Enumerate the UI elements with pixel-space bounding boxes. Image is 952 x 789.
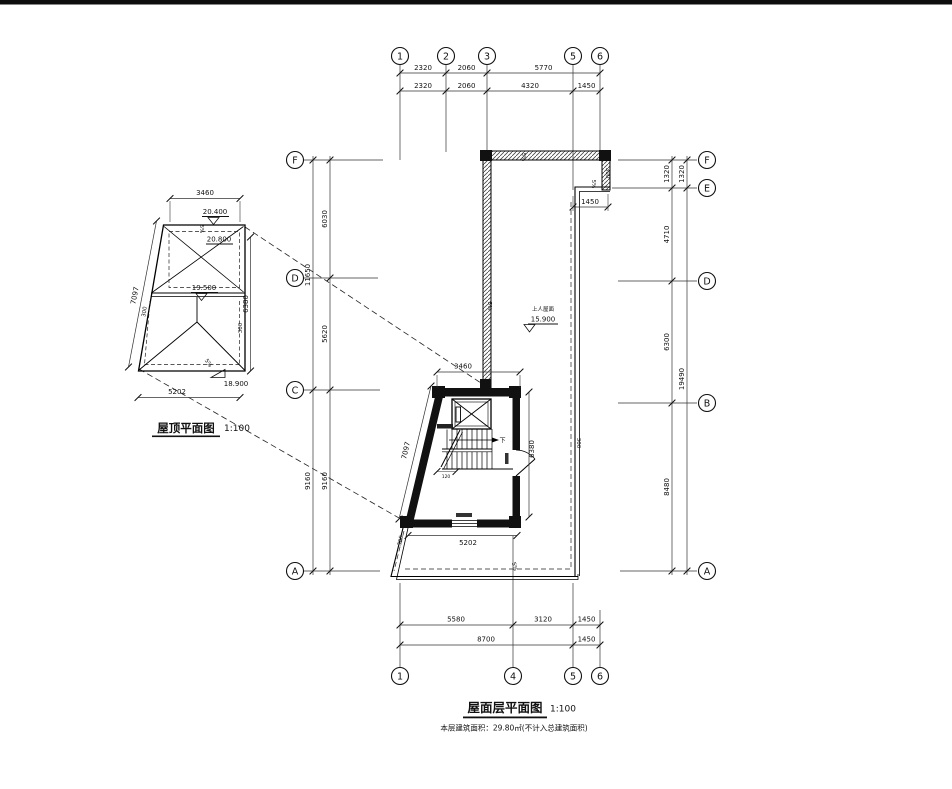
axis-bubble-B-right: B — [704, 399, 711, 410]
dim-col-right: 1320 4710 6300 8480 1320 19490 — [663, 165, 686, 496]
axis-bubble-6: 6 — [597, 52, 603, 63]
dim-bot1-a: 5580 — [447, 616, 465, 624]
offset-mark-parapet: 300 — [575, 438, 581, 449]
axis-bubble-F-left: F — [292, 156, 297, 167]
cad-drawing-page: 1 2 3 5 6 2320 2060 5770 2320 2060 4320 … — [0, 0, 952, 789]
dim-top2-a: 2320 — [414, 82, 432, 90]
axis-bubble-2: 2 — [443, 52, 449, 63]
dim-top1-c: 5770 — [535, 64, 553, 72]
dim-roof-5202: 5202 — [168, 388, 186, 396]
dim-bot2-b: 1450 — [578, 636, 596, 644]
dim-core-3460: 3460 — [454, 363, 472, 371]
slope-mark-step: 5% — [590, 180, 596, 189]
dim-right-4710: 4710 — [663, 226, 671, 244]
axis-bubble-F-right: F — [704, 156, 709, 167]
dim-left-5620: 5620 — [321, 325, 329, 343]
dim-top2-b: 2060 — [458, 82, 476, 90]
dim-roof-6380: 6380 — [242, 295, 250, 313]
window-bottom-wall — [452, 521, 477, 527]
stair-tag-blob — [437, 424, 453, 429]
roof-plan-dims: 3460 7097 6380 5202 — [125, 189, 254, 401]
slope-roof-upper: 5% — [198, 225, 204, 234]
dim-step-1450: 1450 — [581, 198, 599, 206]
axis-labels-left: F D C A — [291, 156, 298, 578]
accessible-roof-level-marker: 上人屋面 15.900 — [524, 305, 558, 332]
floor-plan-canvas: 1 2 3 5 6 2320 2060 5770 2320 2060 4320 … — [0, 0, 952, 789]
roof-plan — [139, 225, 246, 371]
slope-roof-lower: 5% — [203, 358, 213, 369]
slope-mark-leftwall: 5% — [486, 302, 492, 311]
dim-top2-d: 1450 — [578, 82, 596, 90]
axis-bubble-C-left: C — [292, 386, 299, 397]
stair-down-label: 下 — [500, 438, 506, 445]
window-tag-blob — [456, 513, 472, 517]
roof-plan-title: 屋顶平面图 1:100 — [152, 421, 250, 437]
slope-mark-bottom: 5% — [510, 562, 518, 572]
roof-area-label: 上人屋面 — [532, 305, 555, 313]
dim-roof-3460: 3460 — [196, 189, 214, 197]
level-18900: 18.900 — [224, 380, 249, 388]
level-20800: 20.800 — [207, 236, 232, 244]
axis-labels-top: 1 2 3 5 6 — [397, 52, 603, 63]
roof-area-level: 15.900 — [531, 316, 556, 324]
dim-left-6030: 6030 — [321, 210, 329, 228]
elevator-shaft — [452, 399, 491, 429]
door-tag-blob — [505, 453, 509, 464]
dim-core-5202: 5202 — [459, 539, 477, 547]
axis-bubble-b4: 4 — [510, 672, 516, 683]
dim-bot1-b: 3120 — [534, 616, 552, 624]
dim-row-bottom-1: 5580 3120 1450 — [397, 616, 604, 629]
axis-bubble-D-right: D — [703, 277, 710, 288]
axis-grid-left — [287, 152, 384, 580]
axis-bubble-A-left: A — [292, 567, 299, 578]
axis-bubble-5: 5 — [570, 52, 576, 63]
dim-core-7097: 7097 — [400, 441, 412, 460]
slope-mark-top: 5% — [520, 153, 526, 162]
axis-bubble-b6: 6 — [597, 672, 603, 683]
axis-bubble-3: 3 — [484, 52, 490, 63]
dim-right-1320: 1320 — [663, 165, 671, 183]
main-plan-area-note: 本层建筑面积：29.80㎡(不计入总建筑面积) — [440, 723, 587, 733]
dim-right-1320-outer: 1320 — [678, 165, 686, 183]
step-dim-1450: 1450 — [570, 194, 612, 211]
main-plan-title: 屋面层平面图 1:100 本层建筑面积：29.80㎡(不计入总建筑面积) — [440, 700, 587, 733]
axis-bubble-b5: 5 — [570, 672, 576, 683]
axis-grid-right — [612, 152, 716, 580]
axis-bubble-1: 1 — [397, 52, 403, 63]
main-plan-scale: 1:100 — [550, 705, 576, 715]
stair-flights — [441, 429, 513, 469]
main-plan-parapets — [391, 150, 611, 580]
dim-roof-7097: 7097 — [129, 286, 140, 305]
dim-row-bottom-2: 8700 1450 — [397, 636, 604, 649]
roof-plan-title-text: 屋顶平面图 — [157, 421, 215, 435]
dim-col-left: 6030 5620 9160 11650 9160 — [304, 210, 329, 490]
axis-bubble-A-right: A — [704, 567, 711, 578]
dim-top2-c: 4320 — [521, 82, 539, 90]
slope-marks-main: 5% 5% 5% 5% 300 300 300 — [397, 153, 610, 572]
dim-left-9160: 9160 — [321, 472, 329, 490]
axis-bubble-D-left: D — [291, 274, 298, 285]
dim-core-6380: 6380 — [528, 440, 536, 458]
level-19500: 19.500 — [192, 284, 217, 292]
dim-top1-b: 2060 — [458, 64, 476, 72]
dim-right-6300: 6300 — [663, 333, 671, 351]
stair-core: 下 — [400, 386, 535, 528]
axis-labels-right: F E D B A — [703, 156, 710, 578]
roof-plan-scale: 1:100 — [224, 424, 250, 434]
dim-top1-a: 2320 — [414, 64, 432, 72]
dim-right-19490: 19490 — [678, 368, 686, 390]
main-plan-title-text: 屋面层平面图 — [467, 700, 542, 715]
axis-bubble-E-right: E — [704, 184, 710, 195]
dim-stair-120: 120 — [442, 474, 451, 480]
dim-row-top-2: 2320 2060 4320 1450 — [397, 82, 604, 94]
axis-grid-bottom — [392, 536, 609, 685]
axis-bubble-b1: 1 — [397, 672, 403, 683]
dim-bot2-a: 8700 — [477, 636, 495, 644]
offset-mark-topright: 300 — [604, 168, 610, 179]
level-20400: 20.400 — [203, 208, 228, 216]
axis-labels-bottom: 1 4 5 6 — [397, 672, 603, 683]
dim-row-top-1: 2320 2060 5770 — [397, 64, 604, 76]
offset-roof-right: 300 — [238, 322, 244, 333]
dim-left-9160-outer: 9160 — [304, 472, 312, 490]
dim-bot1-c: 1450 — [578, 616, 596, 624]
dim-right-8480: 8480 — [663, 478, 671, 496]
top-border-bar — [0, 0, 952, 5]
